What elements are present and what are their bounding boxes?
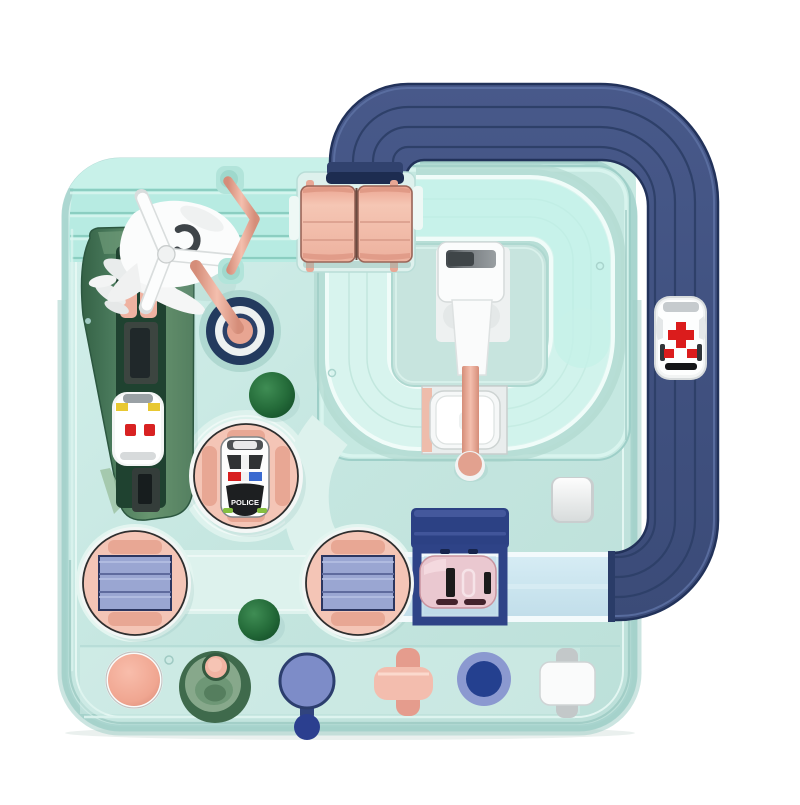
svg-text:POLICE: POLICE — [231, 498, 259, 507]
